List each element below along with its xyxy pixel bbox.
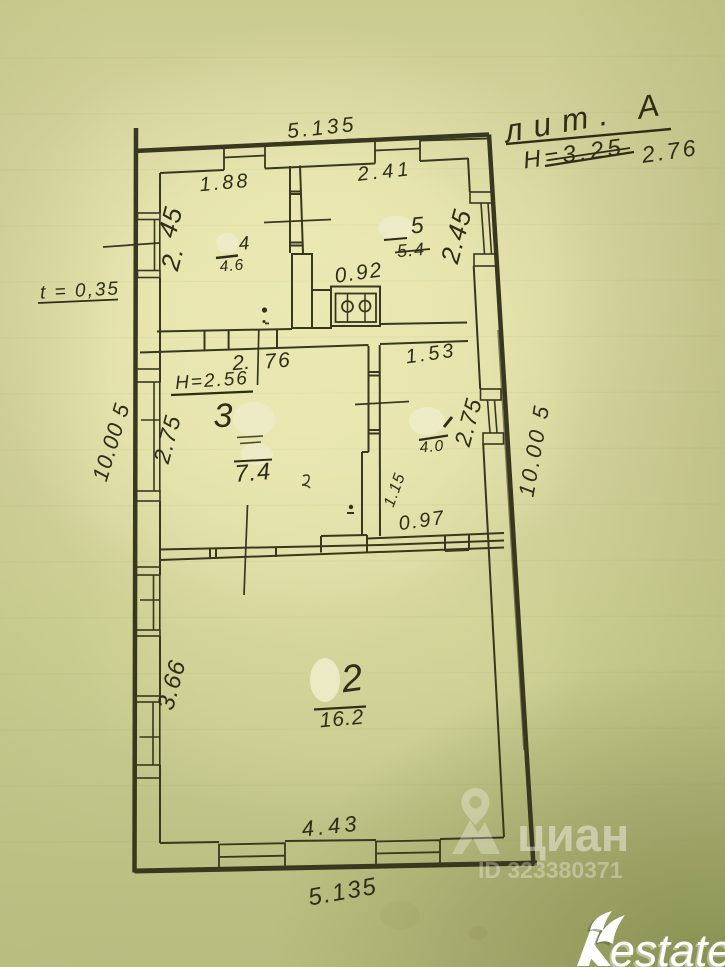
- svg-text:4: 4: [238, 233, 250, 255]
- svg-text:1.88: 1.88: [199, 170, 252, 196]
- svg-text:циан: циан: [517, 808, 629, 861]
- svg-text:4.6: 4.6: [219, 256, 245, 275]
- svg-text:76: 76: [263, 348, 292, 373]
- svg-text:7.4: 7.4: [234, 458, 273, 488]
- svg-text:5: 5: [409, 211, 424, 238]
- svg-text:ID 323380371: ID 323380371: [478, 857, 623, 883]
- svg-text:3: 3: [214, 397, 233, 435]
- svg-text:estate: estate: [610, 925, 725, 967]
